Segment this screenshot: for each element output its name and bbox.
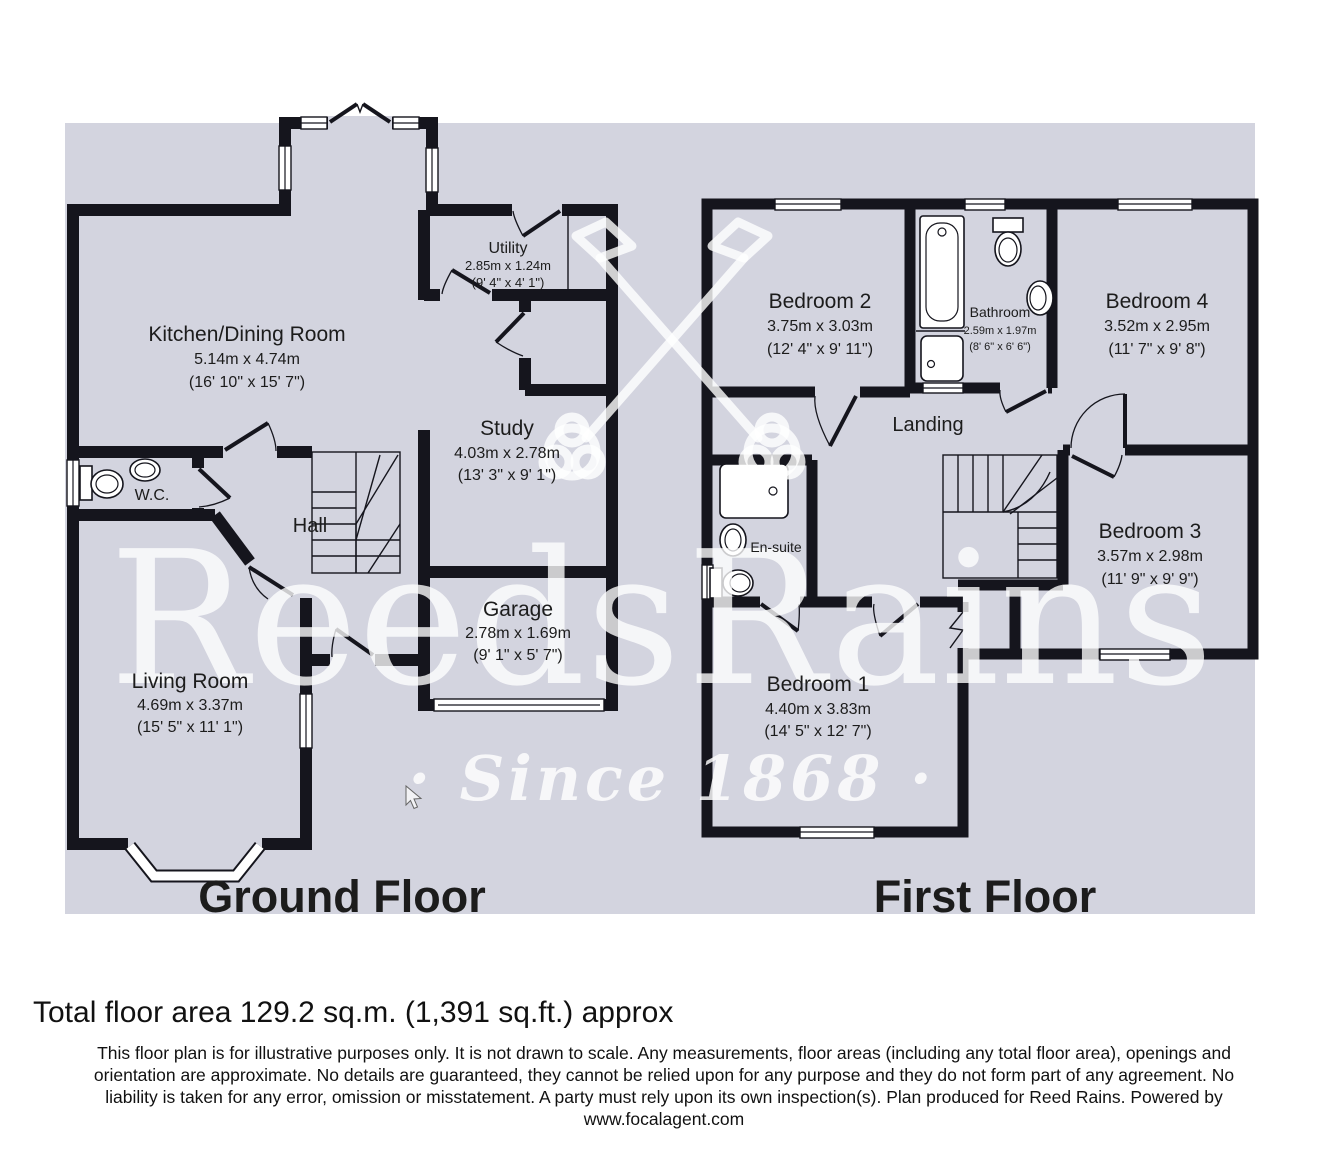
- svg-text:Study: Study: [480, 417, 534, 440]
- svg-text:Bedroom 1: Bedroom 1: [767, 673, 870, 696]
- svg-text:Living Room: Living Room: [132, 670, 249, 693]
- bay-side-window-left: [279, 146, 291, 190]
- room-label-bedroom3: Bedroom 3 3.57m x 2.98m (11' 9" x 9' 9"): [1097, 520, 1203, 588]
- svg-text:Bathroom: Bathroom: [970, 304, 1031, 320]
- svg-text:(12' 4" x 9' 11"): (12' 4" x 9' 11"): [767, 341, 873, 358]
- disclaimer-line-3: liability is taken for any error, omissi…: [0, 1086, 1328, 1108]
- svg-text:Bedroom 4: Bedroom 4: [1106, 290, 1209, 313]
- svg-text:2.59m x 1.97m: 2.59m x 1.97m: [964, 325, 1037, 337]
- room-label-landing: Landing: [892, 414, 963, 436]
- svg-text:4.69m x 3.37m: 4.69m x 3.37m: [137, 697, 243, 714]
- floorplan-page: Reeds Rains · Since 1868 · Kitchen/Dinin…: [0, 0, 1328, 1151]
- gf-bay-opening: [128, 837, 262, 851]
- svg-text:(14' 5" x 12' 7"): (14' 5" x 12' 7"): [764, 723, 871, 740]
- svg-text:4.40m x 3.83m: 4.40m x 3.83m: [765, 701, 871, 718]
- svg-text:2.85m x 1.24m: 2.85m x 1.24m: [465, 258, 551, 273]
- svg-text:(11' 7" x 9' 8"): (11' 7" x 9' 8"): [1108, 341, 1205, 358]
- svg-text:Utility: Utility: [488, 240, 527, 257]
- wc-window: [67, 460, 79, 506]
- disclaimer-line-4: www.focalagent.com: [0, 1108, 1328, 1130]
- svg-text:(15' 5" x 11' 1"): (15' 5" x 11' 1"): [137, 719, 243, 736]
- shower-icon: [921, 336, 963, 381]
- watermark-tagline: · Since 1868 ·: [408, 742, 935, 815]
- svg-text:(11' 9" x 9' 9"): (11' 9" x 9' 9"): [1101, 571, 1198, 588]
- svg-text:3.52m x 2.95m: 3.52m x 2.95m: [1104, 318, 1210, 335]
- sink-icon: [1027, 281, 1053, 315]
- bay-side-window-right: [426, 148, 438, 192]
- svg-text:Garage: Garage: [483, 598, 553, 621]
- svg-text:4.03m x 2.78m: 4.03m x 2.78m: [454, 445, 560, 462]
- disclaimer: This floor plan is for illustrative purp…: [0, 1042, 1328, 1130]
- total-floor-area: Total floor area 129.2 sq.m. (1,391 sq.f…: [33, 996, 673, 1030]
- first-floor-title: First Floor: [874, 871, 1097, 922]
- disclaimer-line-1: This floor plan is for illustrative purp…: [0, 1042, 1328, 1064]
- room-label-bedroom4: Bedroom 4 3.52m x 2.95m (11' 7" x 9' 8"): [1104, 290, 1210, 358]
- toilet-cistern-icon: [80, 466, 92, 500]
- room-label-living-room: Living Room 4.69m x 3.37m (15' 5" x 11' …: [132, 670, 249, 736]
- room-label-bedroom2: Bedroom 2 3.75m x 3.03m (12' 4" x 9' 11"…: [767, 290, 873, 358]
- svg-text:Bedroom 3: Bedroom 3: [1099, 520, 1202, 543]
- bay-top-window-right: [393, 117, 419, 129]
- svg-text:(8' 6" x 6' 6"): (8' 6" x 6' 6"): [969, 341, 1031, 353]
- svg-text:(16' 10" x 15' 7"): (16' 10" x 15' 7"): [189, 374, 305, 391]
- bath-icon: [920, 216, 964, 328]
- disclaimer-line-2: orientation are approximate. No details …: [0, 1064, 1328, 1086]
- svg-text:(9' 1" x 5' 7"): (9' 1" x 5' 7"): [473, 647, 563, 664]
- svg-text:(13' 3" x 9' 1"): (13' 3" x 9' 1"): [458, 467, 556, 484]
- room-label-bedroom1: Bedroom 1 4.40m x 3.83m (14' 5" x 12' 7"…: [764, 673, 871, 740]
- toilet-icon: [993, 218, 1023, 266]
- bedroom2-window: [775, 199, 841, 210]
- svg-text:Bedroom 2: Bedroom 2: [769, 290, 872, 313]
- svg-text:3.75m x 3.03m: 3.75m x 3.03m: [767, 318, 873, 335]
- svg-text:5.14m x 4.74m: 5.14m x 4.74m: [194, 351, 300, 368]
- room-label-wc: W.C.: [135, 487, 170, 504]
- vanity-unit: [923, 383, 963, 393]
- room-label-bathroom: Bathroom 2.59m x 1.97m (8' 6" x 6' 6"): [964, 304, 1037, 353]
- bedroom1-window: [800, 827, 874, 838]
- svg-text:2.78m x 1.69m: 2.78m x 1.69m: [465, 625, 571, 642]
- bay-top-window-left: [301, 117, 327, 129]
- watermark-word-1: Reeds: [109, 511, 681, 727]
- bedroom4-window: [1118, 199, 1192, 210]
- floorplan-canvas: Reeds Rains · Since 1868 · Kitchen/Dinin…: [0, 0, 1328, 1151]
- room-label-hall: Hall: [293, 515, 327, 537]
- svg-text:(9' 4" x 4' 1"): (9' 4" x 4' 1"): [472, 275, 545, 290]
- room-label-ensuite: En-suite: [750, 539, 802, 555]
- bathroom-window: [965, 199, 1005, 210]
- svg-text:Kitchen/Dining Room: Kitchen/Dining Room: [148, 323, 345, 346]
- ground-floor-title: Ground Floor: [198, 871, 485, 922]
- svg-text:3.57m x 2.98m: 3.57m x 2.98m: [1097, 548, 1203, 565]
